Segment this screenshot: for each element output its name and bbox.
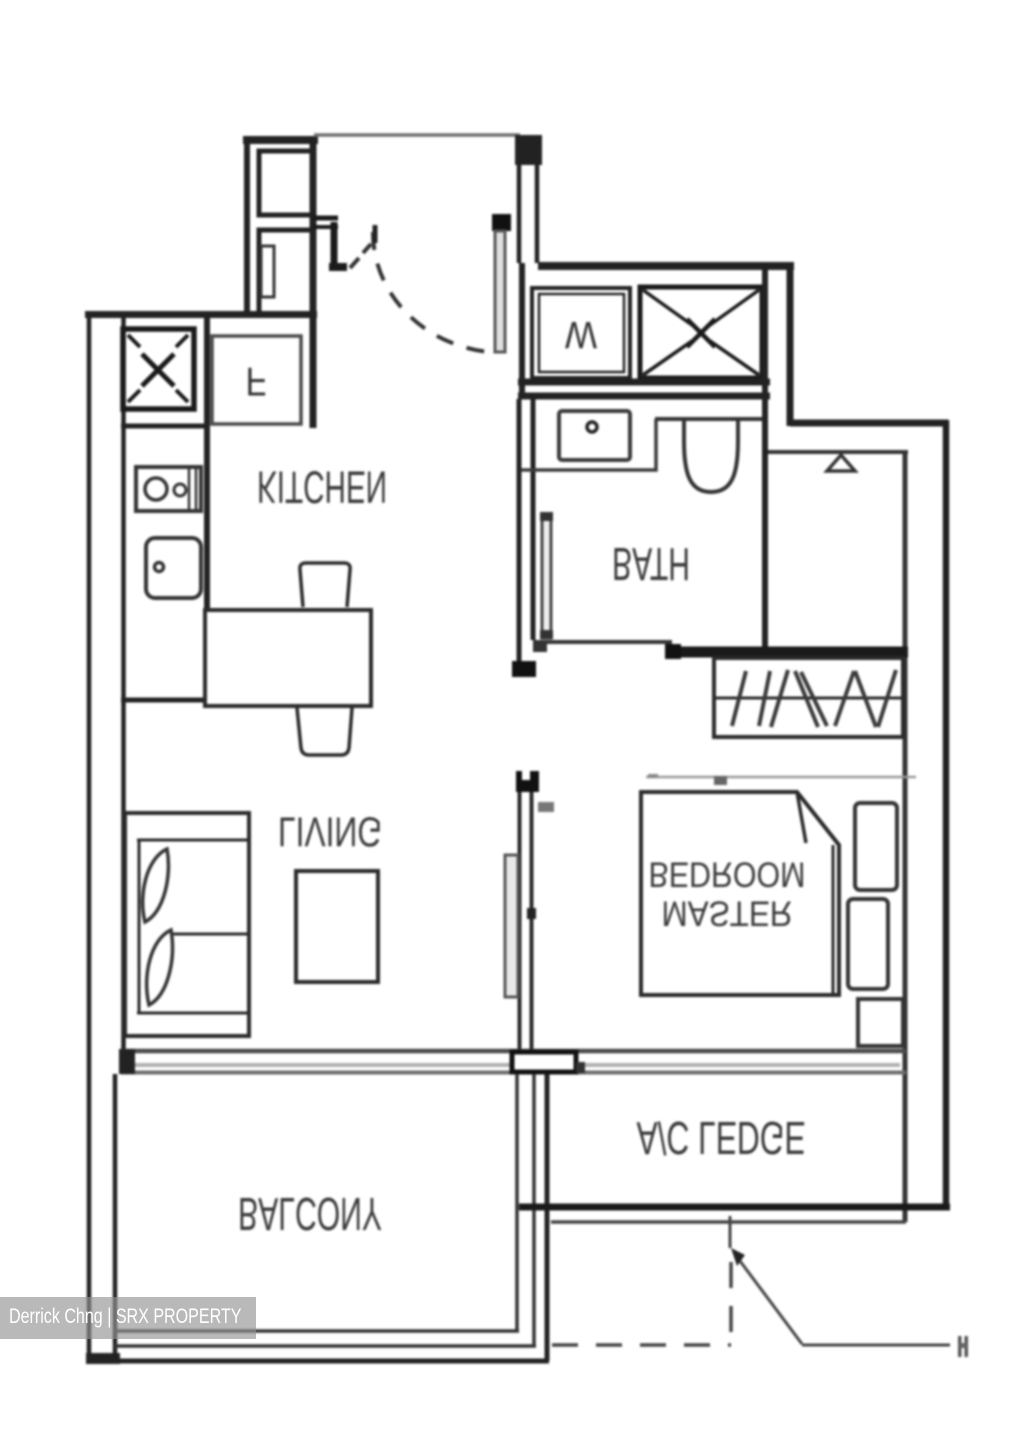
svg-text:BALCONY: BALCONY xyxy=(238,1188,382,1240)
svg-text:W: W xyxy=(565,313,597,355)
svg-text:LIVING: LIVING xyxy=(278,809,382,856)
svg-text:MASTER: MASTER xyxy=(662,894,793,933)
svg-text:F: F xyxy=(246,359,267,403)
svg-text:BEDROOM: BEDROOM xyxy=(649,855,806,894)
svg-text:KITCHEN: KITCHEN xyxy=(257,462,387,513)
svg-text:BATH: BATH xyxy=(612,538,690,590)
svg-text:A/C LEDGE: A/C LEDGE xyxy=(637,1112,806,1164)
